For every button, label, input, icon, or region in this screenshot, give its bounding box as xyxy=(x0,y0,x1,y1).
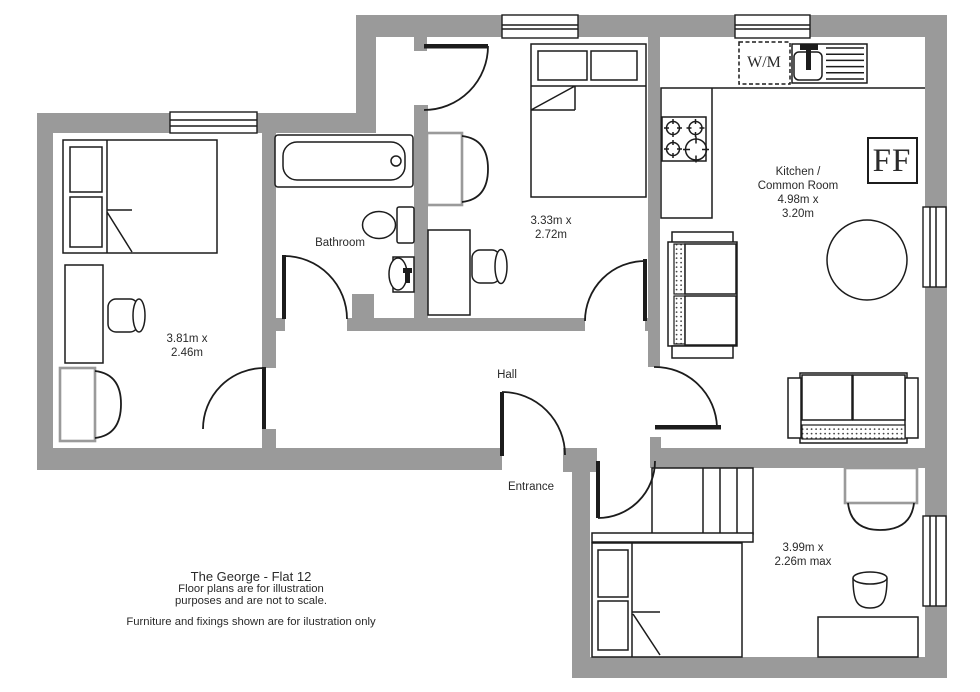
kitchen-sofa-vertical xyxy=(668,232,737,358)
toilet xyxy=(363,207,415,243)
stairs xyxy=(652,468,753,534)
bedroom2-window xyxy=(502,15,578,38)
bedroom3-window xyxy=(923,516,946,606)
plan-title: The George - Flat 12 xyxy=(126,569,375,584)
entrance-label: Entrance xyxy=(508,480,554,494)
bedroom1-wardrobe xyxy=(60,368,121,441)
bedroom3-bed xyxy=(592,543,742,657)
kitchen-door xyxy=(654,367,721,430)
dims-line: 2.72m xyxy=(531,228,572,242)
bedroom3-shelf xyxy=(592,533,753,542)
bedroom2-dimensions: 3.33m x 2.72m xyxy=(531,214,572,242)
dims-line: 3.81m x xyxy=(167,332,208,346)
bedroom3-stool xyxy=(853,572,887,608)
bedroom1-bed xyxy=(63,140,217,253)
footer-line: Floor plans are for illustration xyxy=(126,584,375,596)
kitchen-sofa-horizontal xyxy=(788,373,918,443)
bedroom1-chair xyxy=(108,299,145,332)
footer-line: Furniture and fixings shown are for ilus… xyxy=(126,617,375,629)
dining-table xyxy=(827,220,907,300)
bedroom1-desk xyxy=(65,265,103,363)
footer-notes: The George - Flat 12 Floor plans are for… xyxy=(126,569,375,629)
dims-line: 4.98m x xyxy=(758,193,839,207)
dims-line: 3.20m xyxy=(758,207,839,221)
bedroom2-chair xyxy=(472,250,507,284)
floor-code-label: FF xyxy=(873,154,912,168)
floor-plan: Bathroom Hall Entrance 3.81m x 2.46m 3.3… xyxy=(0,0,980,692)
dims-line: 3.99m x xyxy=(775,541,832,555)
bedroom1-window xyxy=(170,112,257,133)
dims-line: 2.46m xyxy=(167,346,208,360)
room-name-line: Common Room xyxy=(758,179,839,193)
hob xyxy=(662,117,709,163)
bathroom-sink xyxy=(389,257,414,292)
entrance-door xyxy=(500,392,565,456)
bedroom2-door xyxy=(585,259,647,321)
bedroom3-door xyxy=(596,461,655,518)
bedroom3-desk xyxy=(818,617,918,657)
kitchen-label: Kitchen / Common Room 4.98m x 3.20m xyxy=(758,165,839,221)
bedroom2-bed xyxy=(531,44,646,197)
hall-label: Hall xyxy=(497,368,517,382)
room-name-line: Kitchen / xyxy=(758,165,839,179)
bathroom-label: Bathroom xyxy=(315,236,365,250)
washing-machine-label: W/M xyxy=(747,56,781,70)
dims-line: 3.33m x xyxy=(531,214,572,228)
footer-line: purposes and are not to scale. xyxy=(126,596,375,608)
kitchen-sink-unit xyxy=(792,44,867,83)
bedroom2-wardrobe xyxy=(427,133,488,205)
kitchen-top-window xyxy=(735,15,810,38)
bedroom1-dimensions: 3.81m x 2.46m xyxy=(167,332,208,360)
dims-line: 2.26m max xyxy=(775,555,832,569)
kitchen-side-window xyxy=(923,207,946,287)
bath xyxy=(275,135,413,187)
bathroom-hall-door xyxy=(282,255,347,319)
bedroom3-wardrobe xyxy=(845,468,917,530)
bedroom1-door xyxy=(203,367,266,429)
bathroom-top-door xyxy=(424,44,488,110)
bedroom2-desk xyxy=(428,230,470,315)
bedroom3-dimensions: 3.99m x 2.26m max xyxy=(775,541,832,569)
